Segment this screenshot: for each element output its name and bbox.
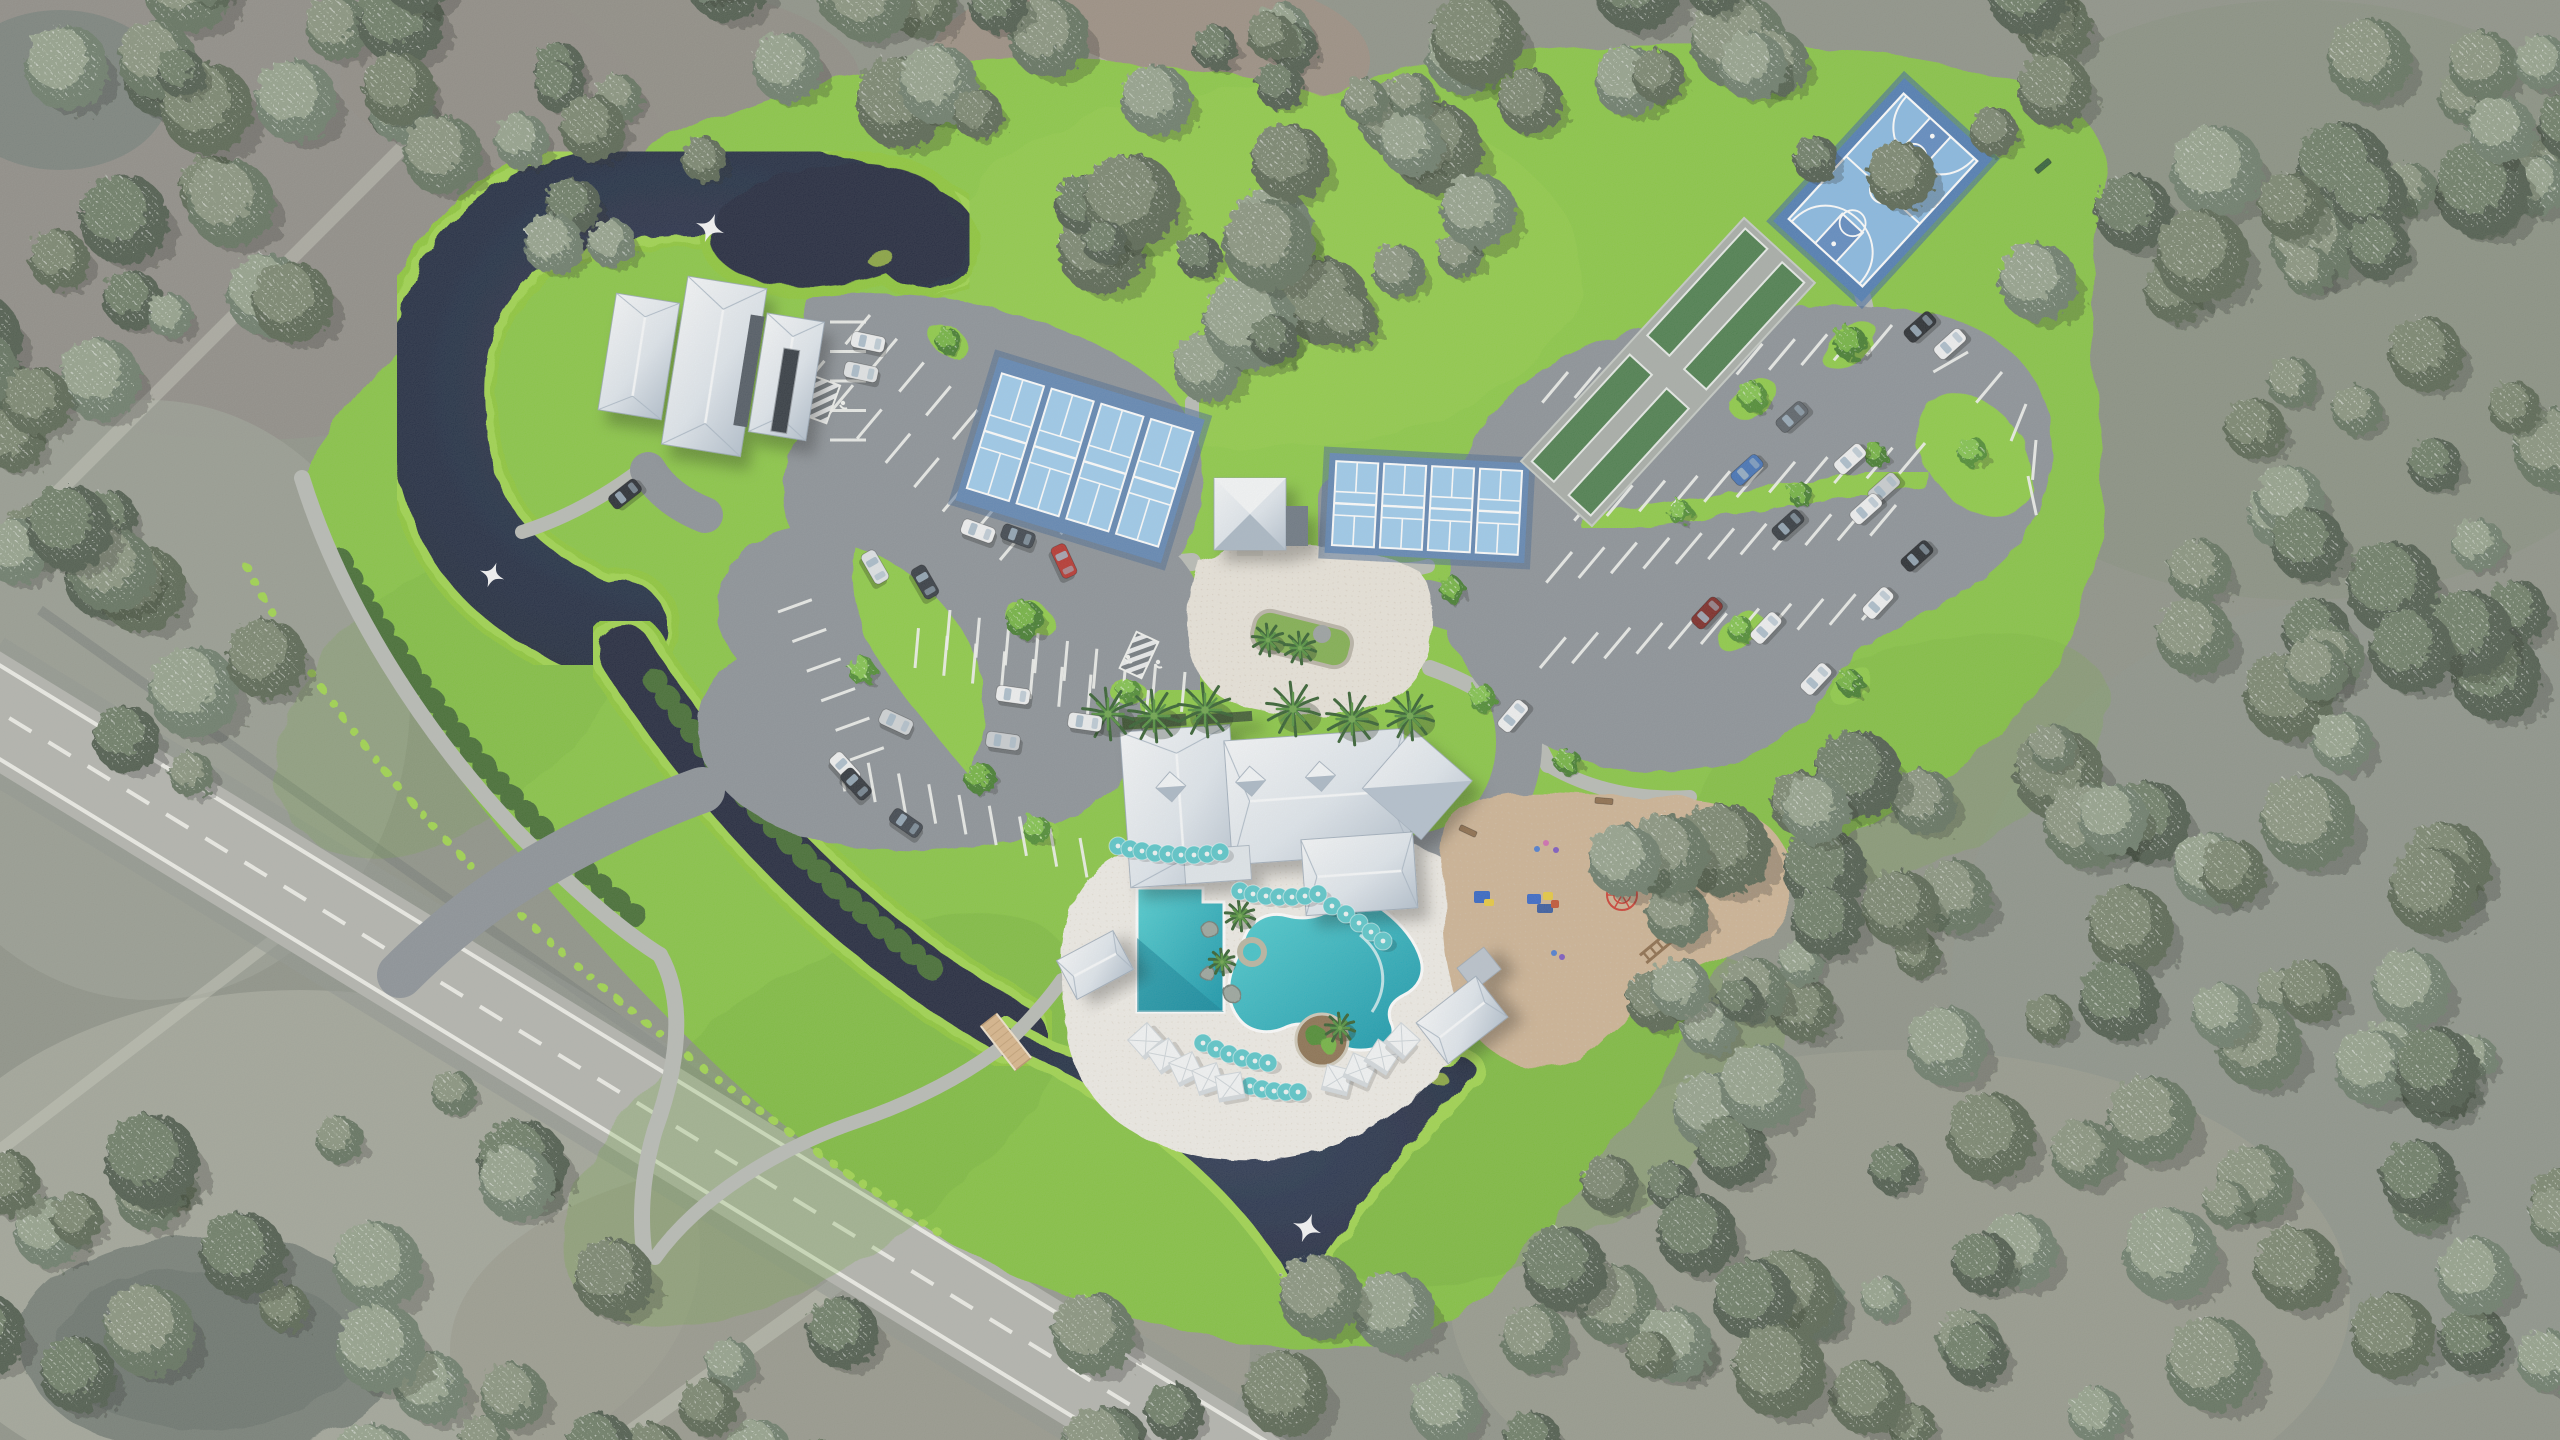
community-amenity-site-plan-rendering <box>0 0 2560 1440</box>
film-grain-overlay <box>0 0 2560 1440</box>
site-plan-stage <box>0 0 2560 1440</box>
